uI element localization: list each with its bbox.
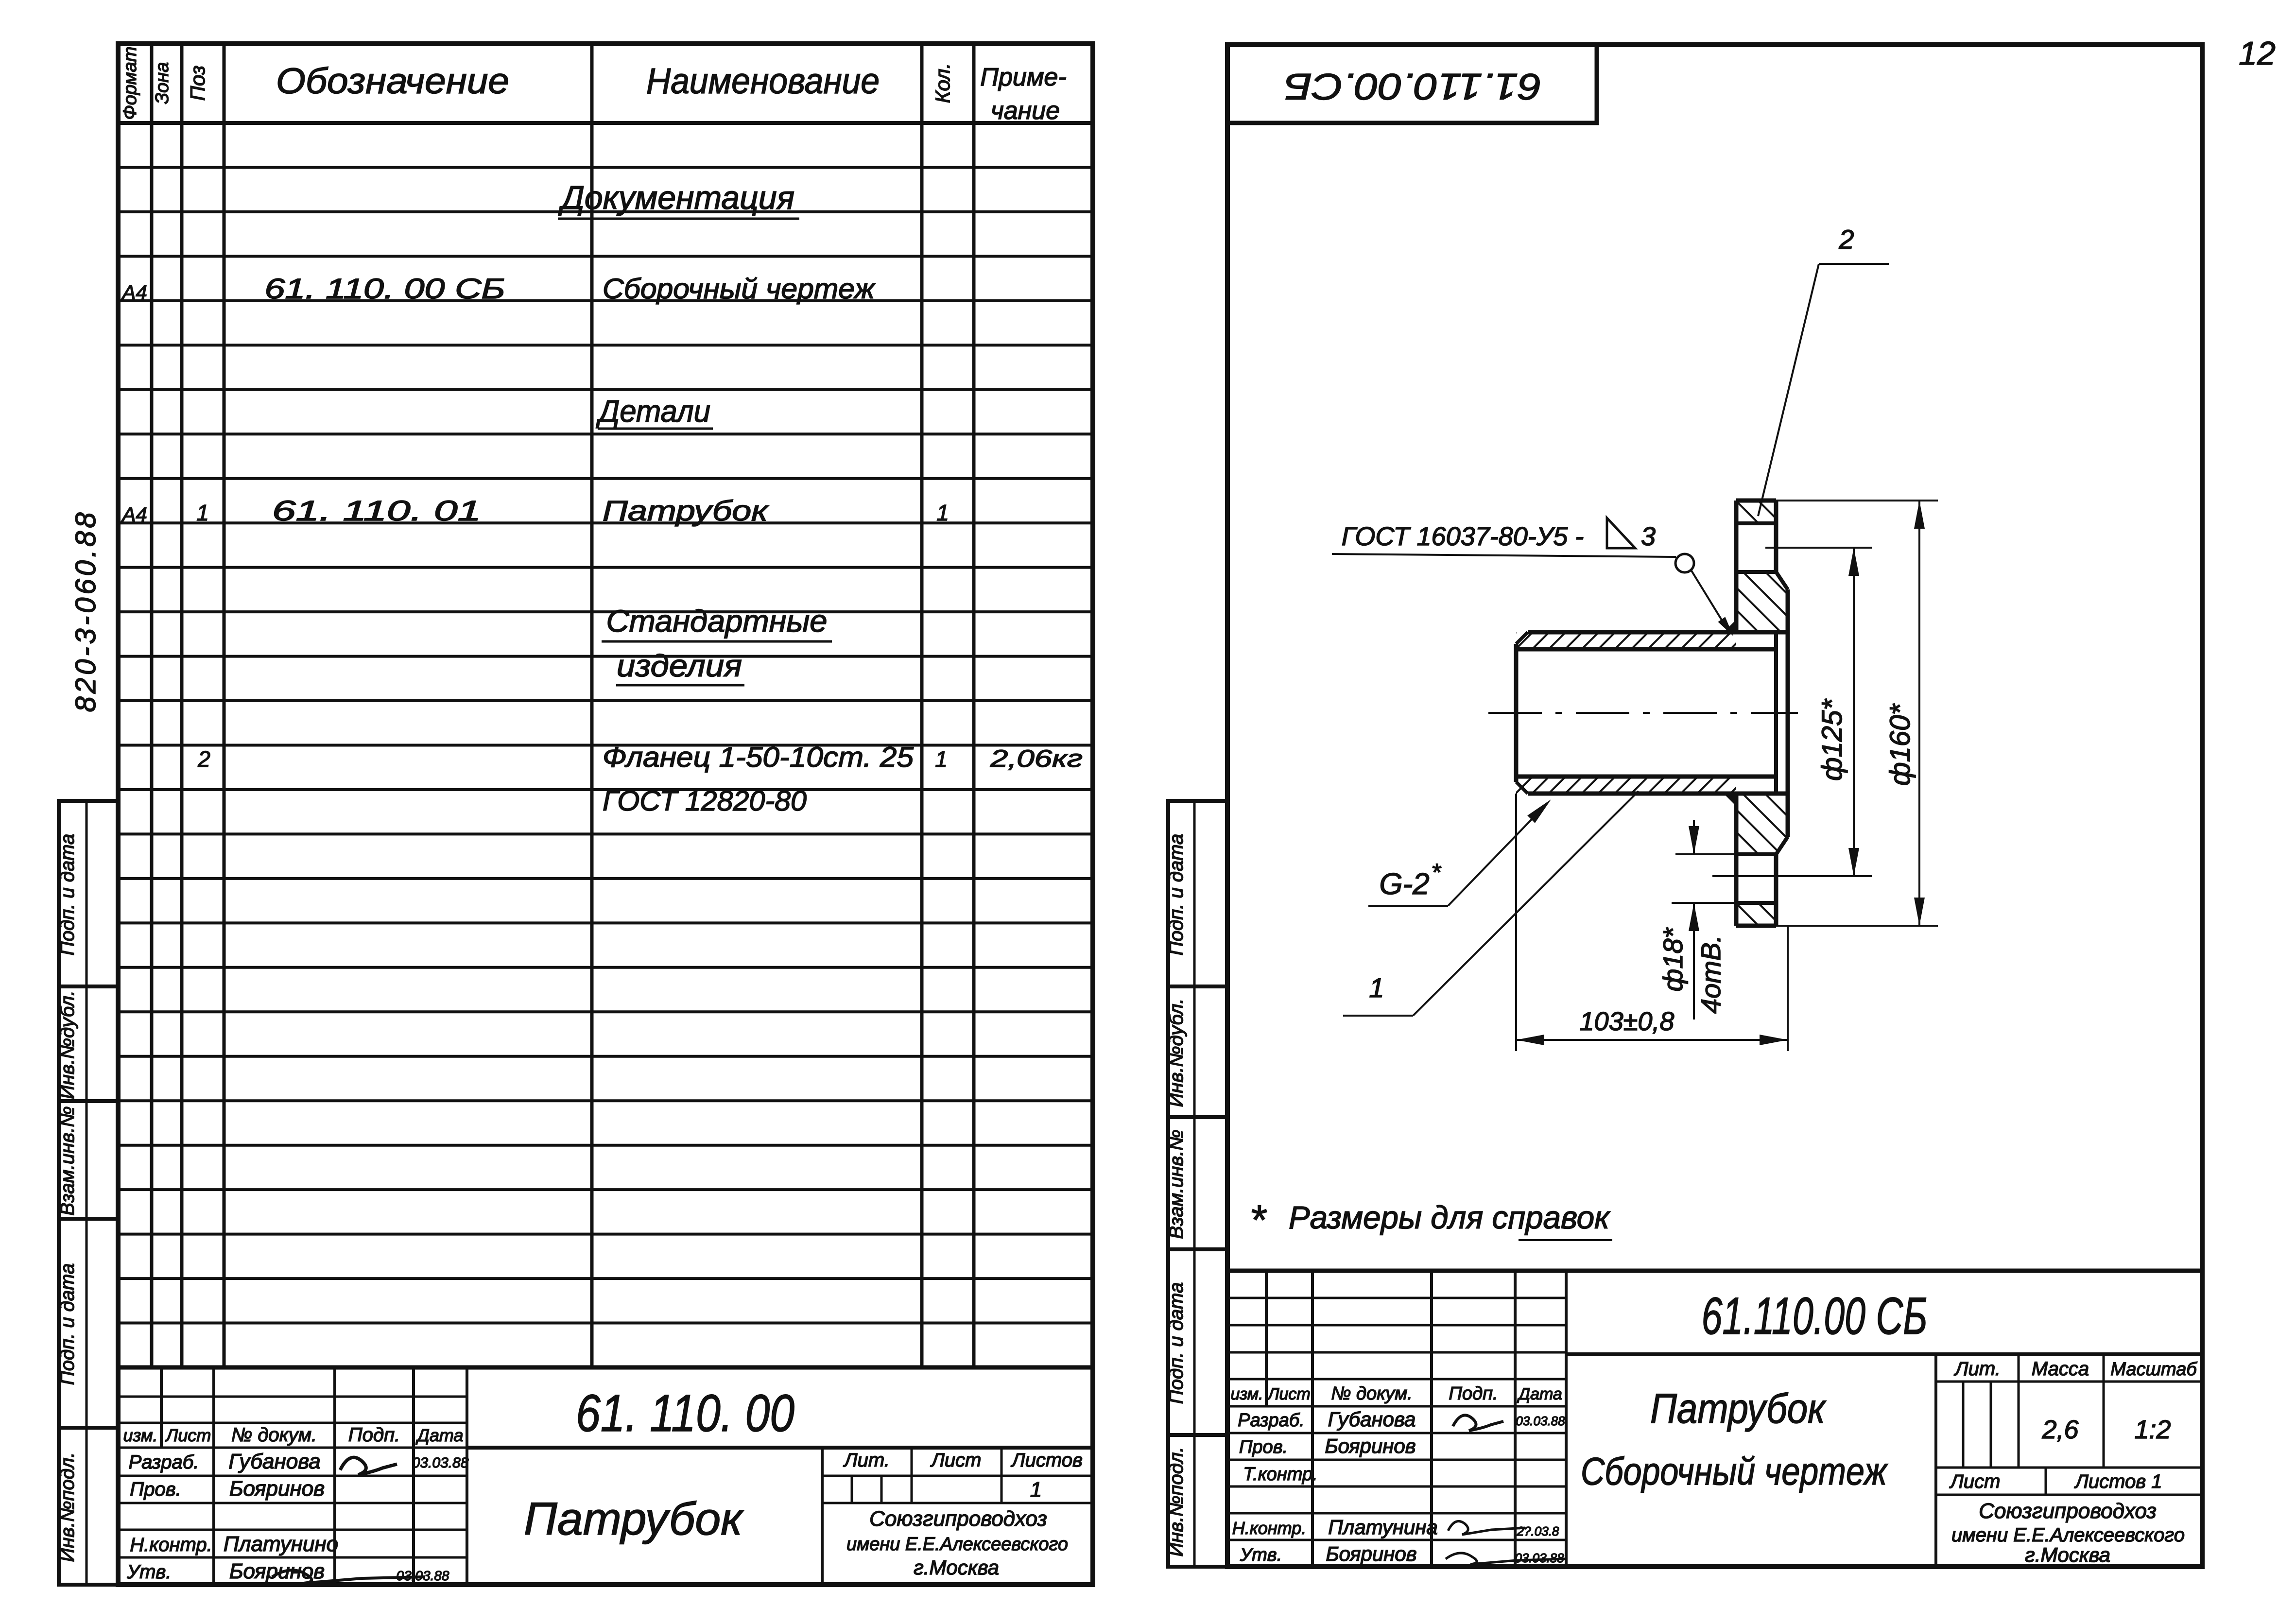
- svg-text:1: 1: [196, 500, 209, 525]
- svg-text:Утв.: Утв.: [1240, 1545, 1282, 1565]
- svg-text:Инв.№дубл.: Инв.№дубл.: [57, 990, 78, 1099]
- svg-text:Утв.: Утв.: [127, 1561, 172, 1583]
- svg-text:Пров.: Пров.: [1239, 1437, 1288, 1457]
- svg-text:изм.: изм.: [123, 1425, 157, 1445]
- svg-text:г.Москва: г.Москва: [2025, 1543, 2110, 1566]
- svg-text:12: 12: [2239, 35, 2276, 72]
- svg-text:1: 1: [1030, 1478, 1042, 1502]
- svg-text:1: 1: [936, 500, 949, 525]
- svg-text:Инв.№подл.: Инв.№подл.: [57, 1452, 78, 1562]
- svg-text:Бояринов: Бояринов: [229, 1477, 325, 1501]
- svg-text:Губанова: Губанова: [1328, 1408, 1416, 1431]
- svg-text:61. 110. 01: 61. 110. 01: [272, 495, 481, 527]
- svg-text:3: 3: [1641, 522, 1656, 551]
- svg-text:изделия: изделия: [617, 648, 742, 683]
- svg-text:03.03.88: 03.03.88: [1516, 1414, 1565, 1428]
- svg-text:Инв.№подл.: Инв.№подл.: [1166, 1447, 1187, 1557]
- svg-text:2,06кг: 2,06кг: [990, 745, 1083, 772]
- svg-text:Наименование: Наименование: [646, 61, 880, 101]
- svg-text:Формат: Формат: [120, 47, 140, 120]
- svg-text:чание: чание: [991, 97, 1060, 125]
- svg-text:имени Е.Е.Алексеевского: имени Е.Е.Алексеевского: [1951, 1524, 2185, 1546]
- svg-text:1: 1: [935, 746, 948, 772]
- svg-text:Платунино: Платунино: [224, 1532, 338, 1556]
- svg-text:Поз: Поз: [186, 66, 209, 101]
- svg-text:820-3-060.88: 820-3-060.88: [70, 509, 102, 712]
- svg-text:Подп. и дата: Подп. и дата: [1166, 1282, 1187, 1404]
- svg-text:г.Москва: г.Москва: [914, 1556, 999, 1579]
- svg-text:Размеры для справок: Размеры для справок: [1289, 1199, 1611, 1235]
- svg-text:Бояринов: Бояринов: [1326, 1542, 1416, 1565]
- svg-text:Лист: Лист: [930, 1450, 982, 1471]
- svg-text:№ докум.: № докум.: [1331, 1383, 1412, 1404]
- svg-text:Лист: Лист: [1267, 1385, 1311, 1403]
- svg-text:2?.03.8: 2?.03.8: [1517, 1524, 1559, 1538]
- svg-text:Патрубок: Патрубок: [524, 1493, 744, 1545]
- svg-text:Фланец 1-50-10ст. 25: Фланец 1-50-10ст. 25: [603, 742, 914, 773]
- svg-text:Детали: Детали: [596, 394, 710, 429]
- svg-text:03.03.88: 03.03.88: [397, 1568, 449, 1583]
- svg-text:Стандартные: Стандартные: [606, 604, 828, 639]
- svg-text:ГОСТ 16037-80-У5 -: ГОСТ 16037-80-У5 -: [1342, 522, 1584, 551]
- svg-text:Кол.: Кол.: [931, 63, 954, 104]
- svg-text:Взам.инв.№: Взам.инв.№: [57, 1106, 78, 1215]
- svg-text:имени Е.Е.Алексеевского: имени Е.Е.Алексеевского: [846, 1534, 1068, 1555]
- svg-text:*: *: [1431, 859, 1441, 886]
- svg-text:ф18*: ф18*: [1657, 927, 1688, 991]
- svg-text:Пров.: Пров.: [130, 1479, 181, 1500]
- svg-text:№ докум.: № докум.: [231, 1424, 317, 1446]
- svg-text:ГОСТ 12820-80: ГОСТ 12820-80: [603, 785, 807, 817]
- svg-text:Масса: Масса: [2032, 1358, 2089, 1380]
- svg-text:Листов 1: Листов 1: [2073, 1471, 2162, 1492]
- svg-text:Подп.: Подп.: [348, 1424, 400, 1446]
- svg-text:ф125*: ф125*: [1816, 698, 1848, 781]
- svg-text:Лит.: Лит.: [1953, 1358, 2001, 1380]
- svg-text:1:2: 1:2: [2134, 1415, 2171, 1444]
- svg-text:G-2: G-2: [1379, 867, 1429, 901]
- svg-text:Подп. и дата: Подп. и дата: [1166, 834, 1187, 955]
- svg-text:Губанова: Губанова: [228, 1450, 320, 1473]
- svg-text:ф160*: ф160*: [1884, 703, 1916, 786]
- svg-text:1: 1: [1369, 972, 1384, 1003]
- svg-text:61.110.00.СБ: 61.110.00.СБ: [1284, 66, 1542, 107]
- svg-text:03.03.88: 03.03.88: [1515, 1551, 1564, 1565]
- svg-text:2,6: 2,6: [2041, 1415, 2079, 1444]
- svg-text:Патрубок: Патрубок: [603, 495, 769, 527]
- svg-text:61. 110. 00: 61. 110. 00: [576, 1383, 794, 1442]
- svg-text:*: *: [1249, 1197, 1267, 1244]
- svg-text:Обозначение: Обозначение: [276, 61, 509, 101]
- svg-text:61. 110. 00 СБ: 61. 110. 00 СБ: [265, 273, 505, 305]
- svg-text:Подп.: Подп.: [1449, 1383, 1498, 1404]
- svg-text:изм.: изм.: [1230, 1385, 1263, 1403]
- svg-text:Приме-: Приме-: [980, 63, 1066, 91]
- svg-text:Подп. и дата: Подп. и дата: [57, 1263, 78, 1385]
- svg-text:Н.контр.: Н.контр.: [1232, 1518, 1306, 1538]
- svg-text:4отВ.: 4отВ.: [1695, 935, 1726, 1014]
- svg-text:А4: А4: [121, 503, 147, 526]
- svg-text:Лит.: Лит.: [843, 1450, 890, 1471]
- svg-text:103±0,8: 103±0,8: [1580, 1007, 1675, 1036]
- svg-text:Дата: Дата: [1517, 1385, 1562, 1403]
- svg-text:Документация: Документация: [558, 179, 794, 216]
- svg-text:61.110.00 СБ: 61.110.00 СБ: [1702, 1286, 1928, 1345]
- svg-text:Дата: Дата: [415, 1425, 464, 1445]
- svg-text:Разраб.: Разраб.: [1238, 1410, 1305, 1431]
- svg-text:2: 2: [197, 746, 210, 772]
- svg-text:Т.контр.: Т.контр.: [1243, 1464, 1317, 1485]
- svg-text:Платунина: Платунина: [1328, 1516, 1437, 1538]
- svg-text:Союзгипроводхоз: Союзгипроводхоз: [1979, 1499, 2157, 1523]
- svg-text:Разраб.: Разраб.: [129, 1451, 199, 1473]
- svg-text:Сборочный чертеж: Сборочный чертеж: [1581, 1450, 1888, 1493]
- svg-text:Бояринов: Бояринов: [1325, 1434, 1416, 1457]
- svg-text:Инв.№дубл.: Инв.№дубл.: [1166, 999, 1187, 1107]
- svg-text:Взам.инв.№: Взам.инв.№: [1166, 1129, 1187, 1239]
- svg-text:Масштаб: Масштаб: [2110, 1359, 2197, 1380]
- svg-text:Подп. и дата: Подп. и дата: [57, 834, 78, 955]
- svg-text:Патрубок: Патрубок: [1650, 1385, 1827, 1432]
- svg-text:Листов: Листов: [1010, 1450, 1083, 1471]
- svg-text:Лист: Лист: [165, 1425, 211, 1445]
- svg-text:2: 2: [1838, 224, 1854, 255]
- svg-text:Зона: Зона: [152, 62, 173, 104]
- svg-text:Н.контр.: Н.контр.: [130, 1534, 212, 1555]
- svg-text:А4: А4: [121, 281, 147, 304]
- svg-text:Сборочный чертеж: Сборочный чертеж: [603, 273, 876, 305]
- svg-text:Союзгипроводхоз: Союзгипроводхоз: [869, 1507, 1047, 1531]
- svg-text:03.03.88: 03.03.88: [412, 1455, 469, 1471]
- svg-text:Лист: Лист: [1949, 1471, 2001, 1492]
